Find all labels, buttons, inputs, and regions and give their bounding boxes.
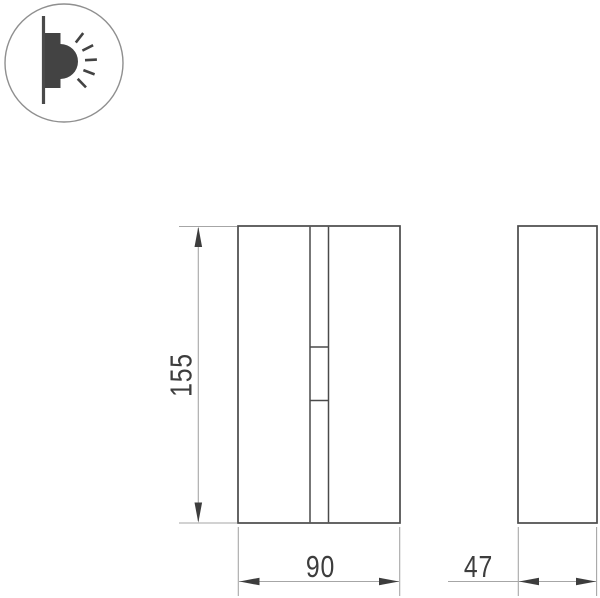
arrow-left-icon xyxy=(519,578,539,586)
front-view xyxy=(238,226,400,523)
light-ray-icon xyxy=(83,70,94,74)
width-dimension-value: 90 xyxy=(306,549,335,583)
light-ray-icon xyxy=(78,79,86,88)
wall-light-icon xyxy=(5,4,123,122)
light-ray-icon xyxy=(85,60,97,61)
front-view-outline xyxy=(238,226,400,523)
arrow-right-icon xyxy=(379,578,399,586)
side-view-outline xyxy=(518,226,597,523)
icon-light-beam xyxy=(61,44,78,79)
arrow-down-icon xyxy=(195,503,203,523)
depth-dimension-value: 47 xyxy=(464,549,493,583)
depth-dimension: 47 xyxy=(448,527,597,596)
drawing-page: 155 90 47 xyxy=(0,0,600,598)
side-view xyxy=(518,226,597,523)
width-dimension: 90 xyxy=(238,527,399,596)
height-dimension-value: 155 xyxy=(164,353,198,397)
height-dimension: 155 xyxy=(164,227,237,524)
light-ray-icon xyxy=(76,33,83,43)
arrow-up-icon xyxy=(195,227,203,247)
arrow-right-icon xyxy=(576,578,596,586)
icon-lamp-body xyxy=(45,33,61,88)
arrow-left-icon xyxy=(240,578,260,586)
technical-drawing-canvas: 155 90 47 xyxy=(0,0,600,598)
light-ray-icon xyxy=(82,45,93,50)
icon-light-rays xyxy=(76,33,97,87)
